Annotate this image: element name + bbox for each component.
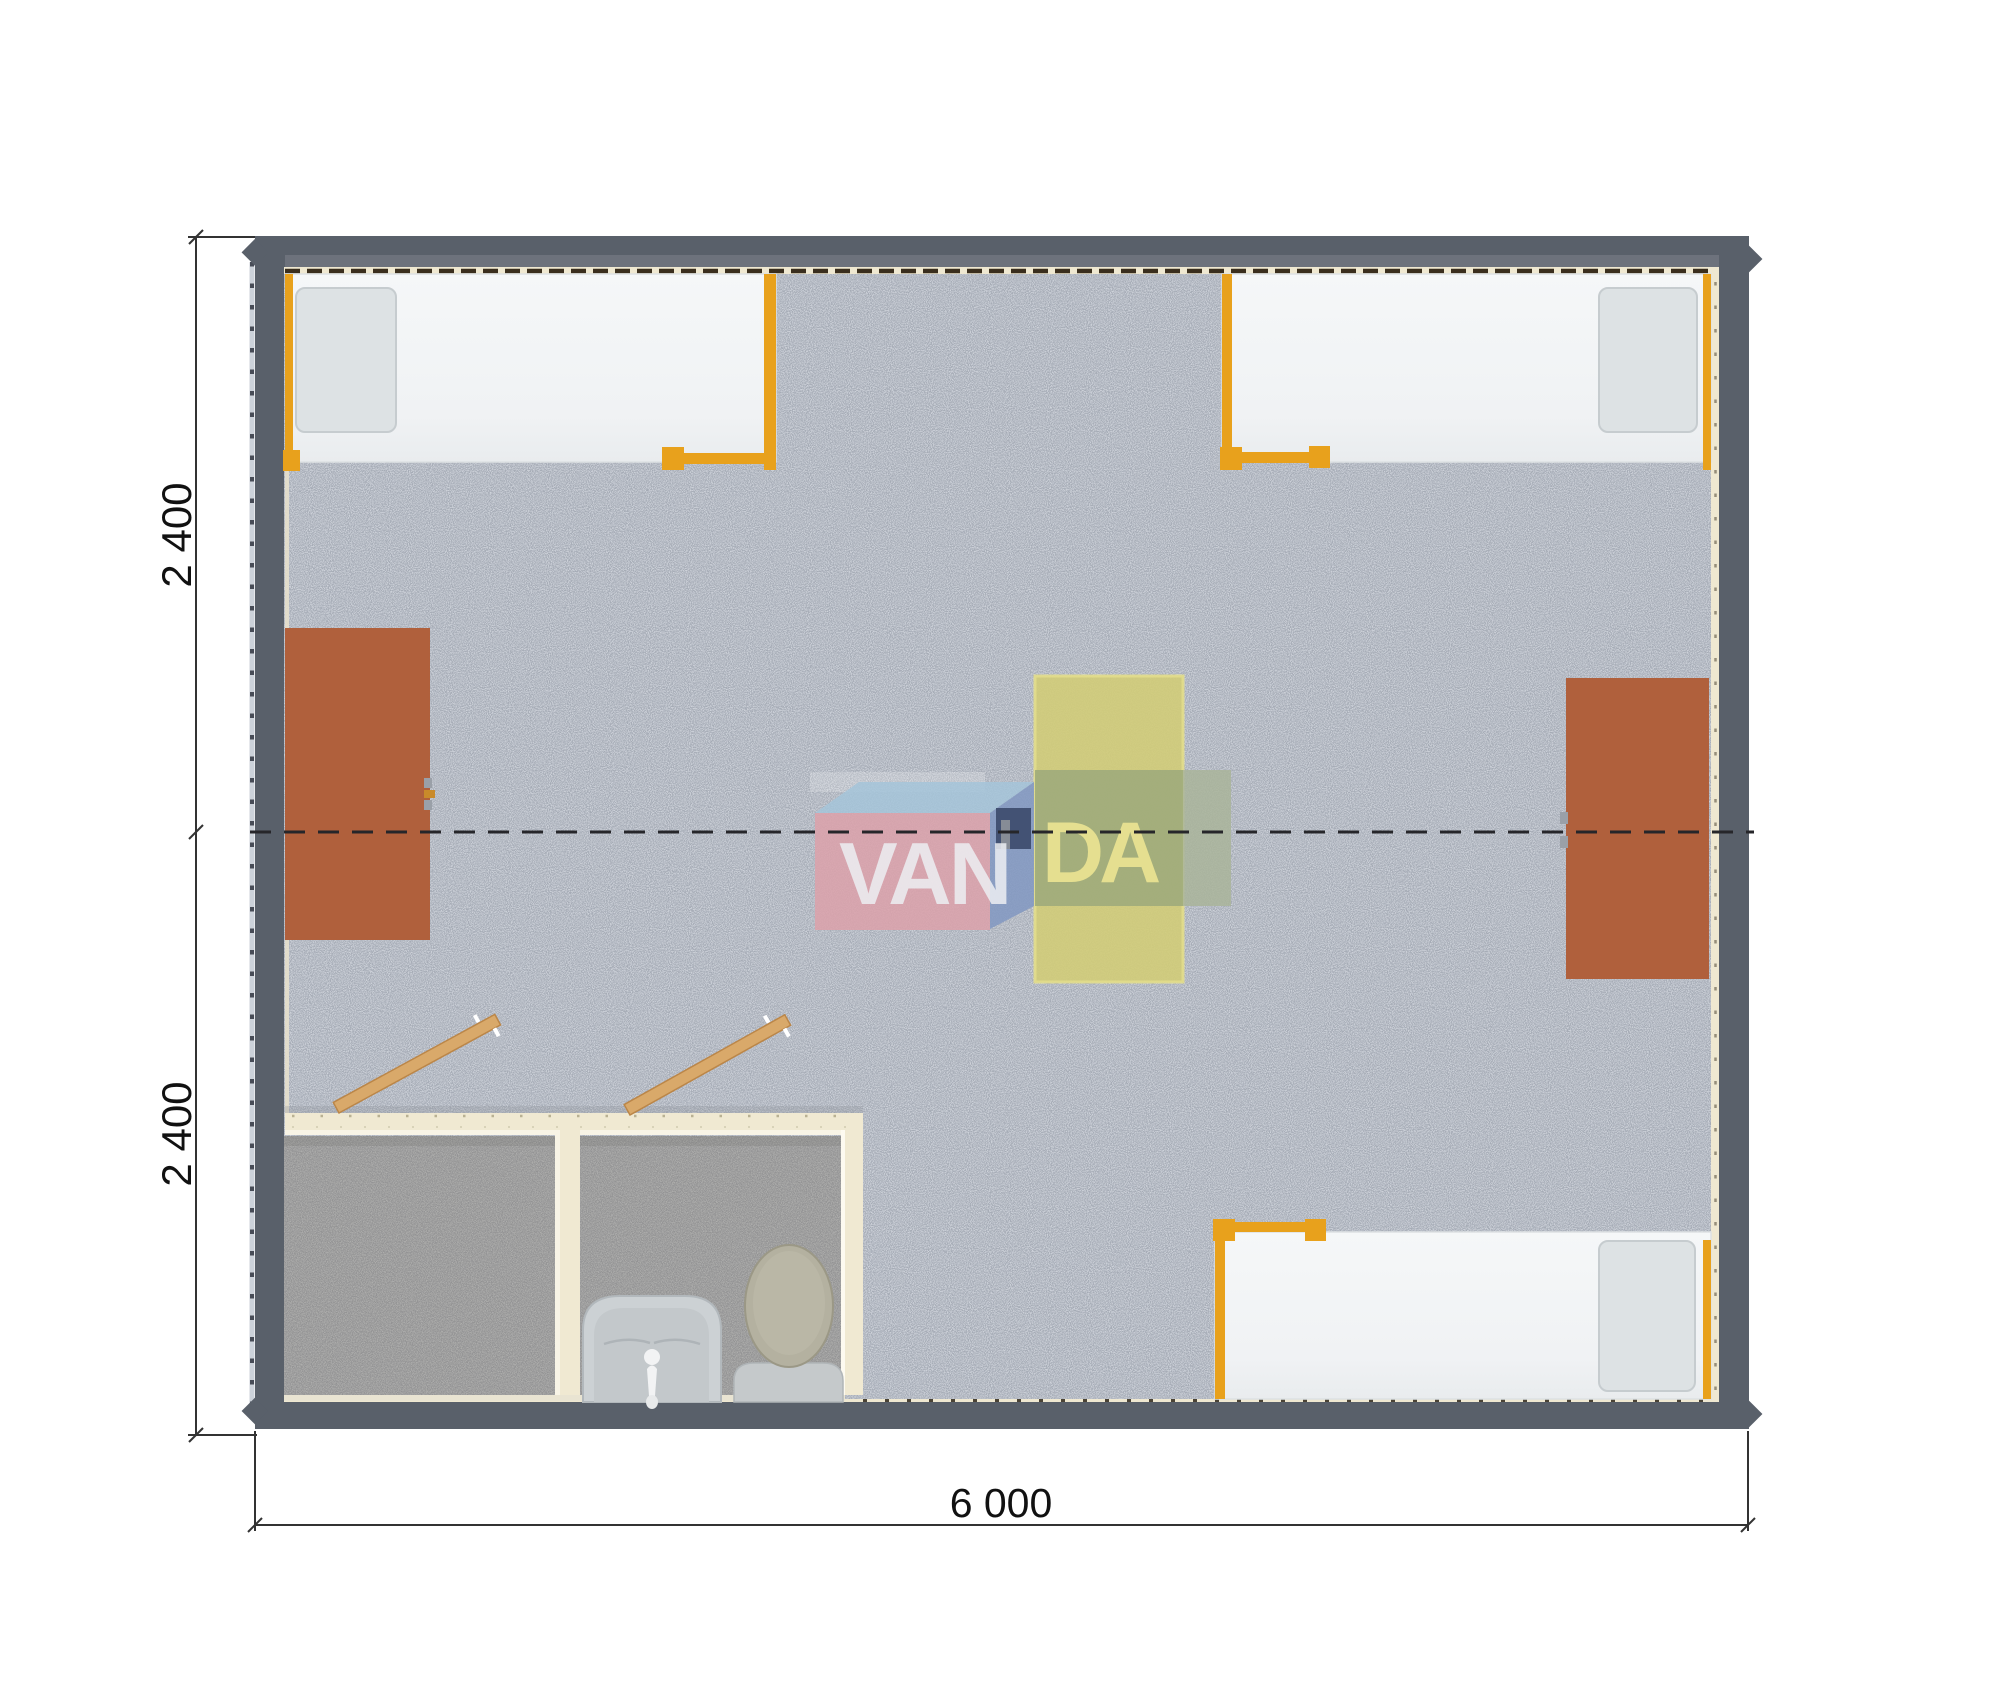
svg-text:2 400: 2 400	[153, 1081, 200, 1186]
svg-text:6 000: 6 000	[950, 1480, 1053, 1526]
svg-text:VAN: VAN	[839, 824, 1009, 923]
svg-text:DA: DA	[1042, 805, 1159, 901]
svg-text:2 400: 2 400	[153, 482, 200, 587]
